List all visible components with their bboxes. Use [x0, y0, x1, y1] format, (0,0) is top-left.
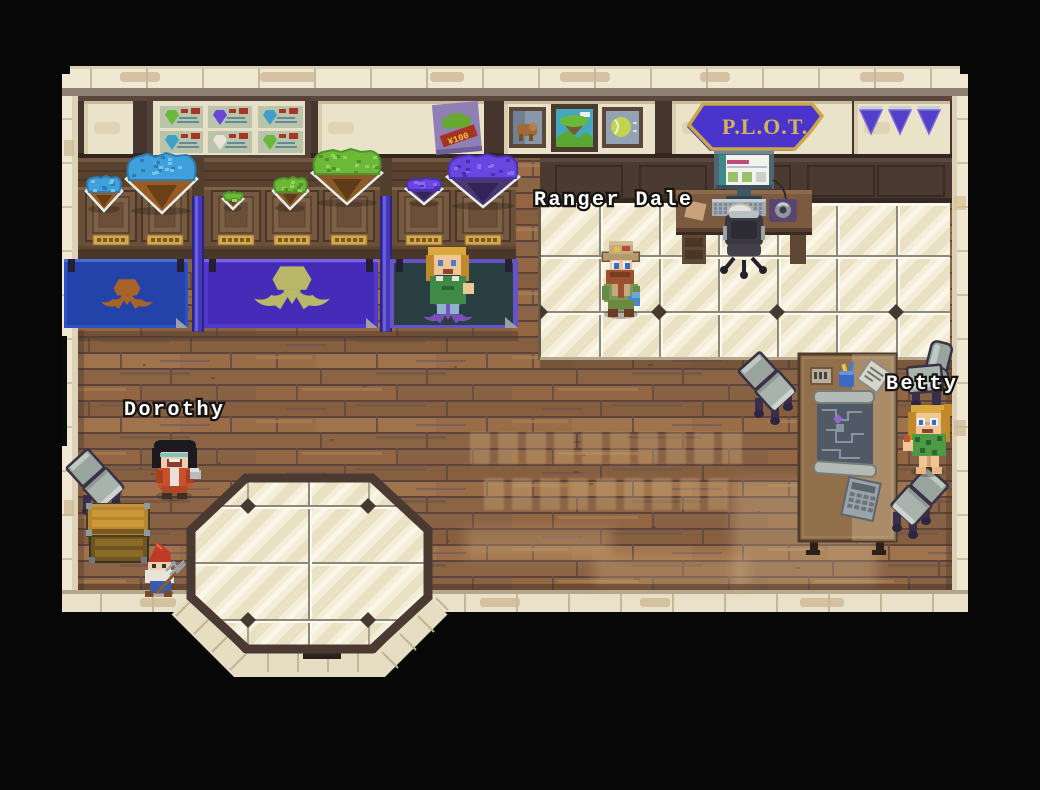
svg-text:P.L.O.T.: P.L.O.T. [722, 114, 808, 139]
svg-text:Betty: Betty [886, 373, 959, 396]
svg-text:Dorothy: Dorothy [124, 399, 226, 422]
svg-text:Ranger Dale: Ranger Dale [534, 189, 694, 212]
